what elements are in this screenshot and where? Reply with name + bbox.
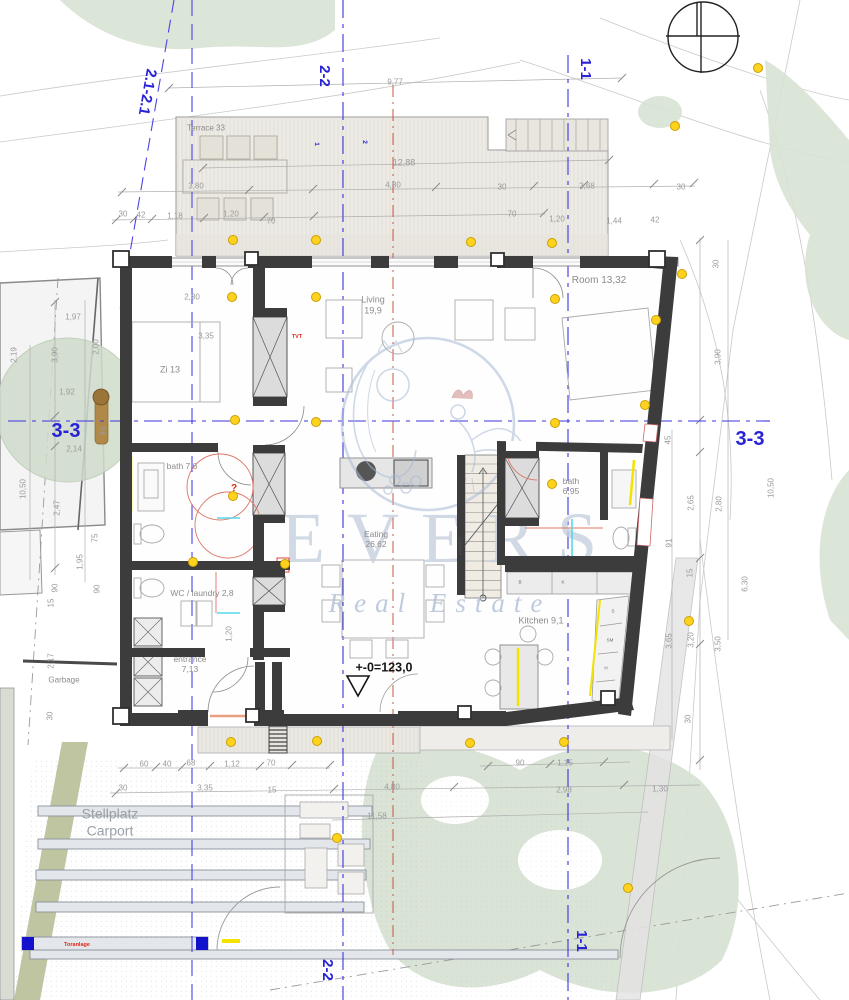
floor-plan-drawing: EVERS Real Estate xyxy=(0,0,849,1000)
gate-post-right xyxy=(196,937,208,950)
floor-plan-page: EVERS Real Estate xyxy=(0,0,849,1000)
watermark-subtitle: Real Estate xyxy=(328,588,552,618)
tree xyxy=(0,338,140,482)
gate-post-left xyxy=(22,937,34,950)
porch xyxy=(198,723,670,753)
terrace xyxy=(176,117,608,256)
garbage-wall xyxy=(23,661,117,664)
house-floor xyxy=(132,268,664,712)
north-indicator-icon xyxy=(666,2,740,73)
